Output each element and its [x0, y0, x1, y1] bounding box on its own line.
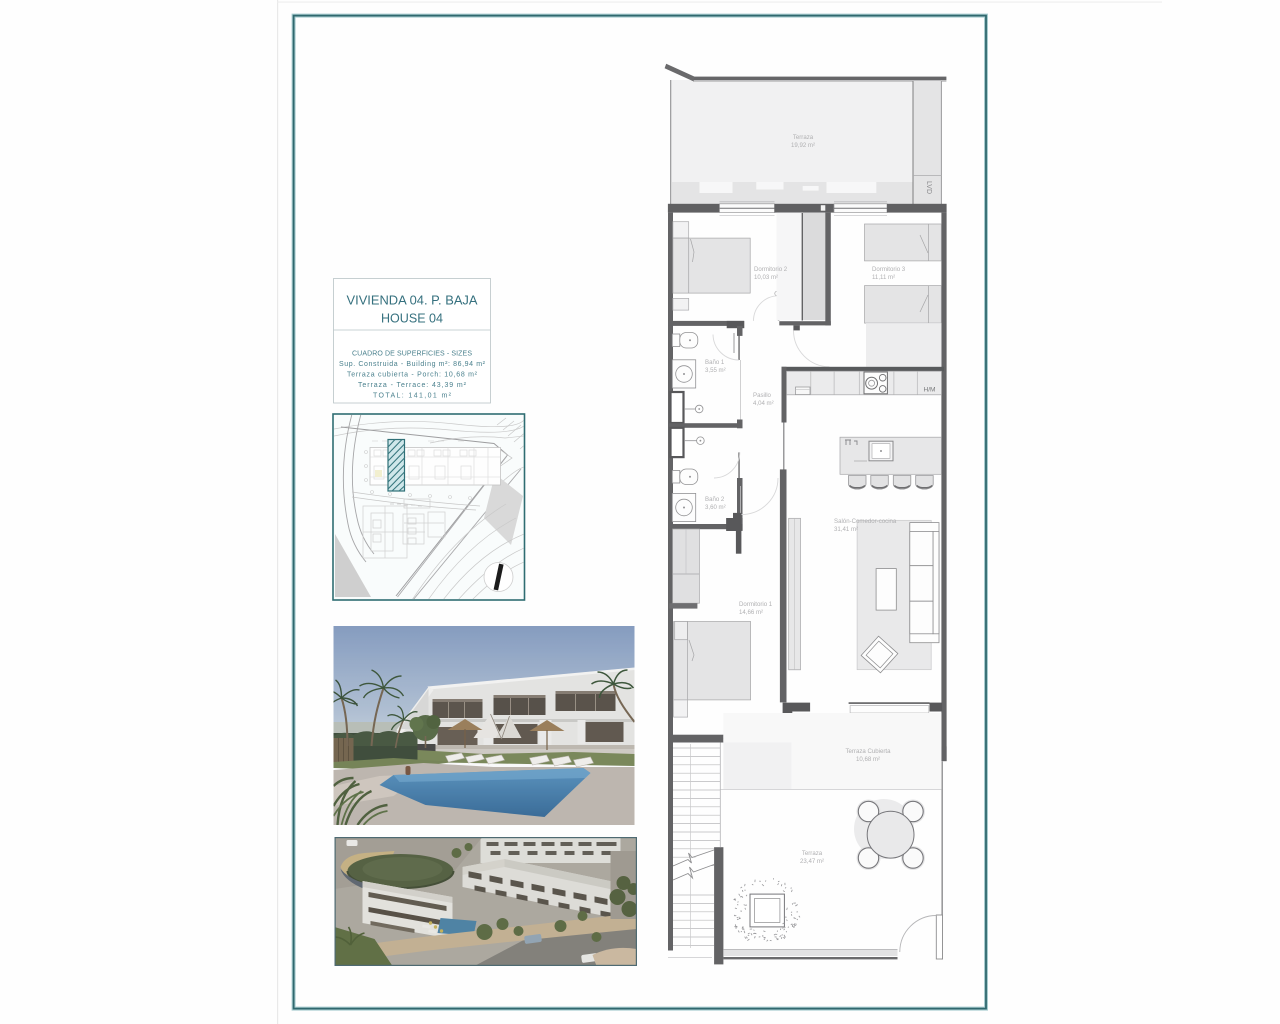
svg-text:23,47 m²: 23,47 m² [800, 858, 824, 865]
svg-text:Sup. Construida - Building m²: Sup. Construida - Building m²: 86,94 m² [339, 361, 486, 368]
svg-text:4,04 m²: 4,04 m² [753, 400, 774, 407]
svg-text:10,03 m²: 10,03 m² [754, 274, 778, 281]
svg-text:Dormitorio 1: Dormitorio 1 [739, 601, 773, 608]
svg-text:19,92 m²: 19,92 m² [791, 142, 815, 149]
svg-text:HOUSE 04: HOUSE 04 [381, 311, 443, 326]
svg-text:Terraza Cubierta: Terraza Cubierta [845, 748, 891, 755]
svg-text:TOTAL: 141,01 m²: TOTAL: 141,01 m² [373, 393, 452, 400]
svg-text:Terraza cubierta - Porch: 10,: Terraza cubierta - Porch: 10,68 m² [347, 372, 478, 379]
svg-text:H/M: H/M [923, 387, 935, 394]
svg-text:3,60 m²: 3,60 m² [705, 504, 726, 511]
svg-text:31,41 m²: 31,41 m² [834, 526, 858, 533]
svg-text:Baño 2: Baño 2 [705, 496, 725, 503]
svg-text:Terraza: Terraza [802, 850, 823, 857]
svg-text:3,55 m²: 3,55 m² [705, 367, 726, 374]
svg-text:Baño 1: Baño 1 [705, 359, 725, 366]
svg-text:Pasillo: Pasillo [753, 392, 772, 399]
svg-text:Dormitorio 3: Dormitorio 3 [872, 266, 906, 273]
svg-text:LVD: LVD [925, 181, 932, 194]
svg-text:Terraza - Terrace: 43,39 m²: Terraza - Terrace: 43,39 m² [358, 382, 467, 389]
svg-text:Dormitorio 2: Dormitorio 2 [754, 266, 788, 273]
svg-text:10,68 m²: 10,68 m² [856, 756, 880, 763]
svg-text:14,66 m²: 14,66 m² [739, 609, 763, 616]
svg-text:11,11 m²: 11,11 m² [872, 274, 895, 281]
svg-text:CUADRO DE SUPERFICIES - SIZES: CUADRO DE SUPERFICIES - SIZES [352, 351, 472, 358]
svg-text:VIVIENDA 04. P. BAJA: VIVIENDA 04. P. BAJA [347, 293, 478, 308]
svg-text:Salón-Comedor-cocina: Salón-Comedor-cocina [834, 518, 897, 525]
svg-text:Terraza: Terraza [793, 134, 814, 141]
